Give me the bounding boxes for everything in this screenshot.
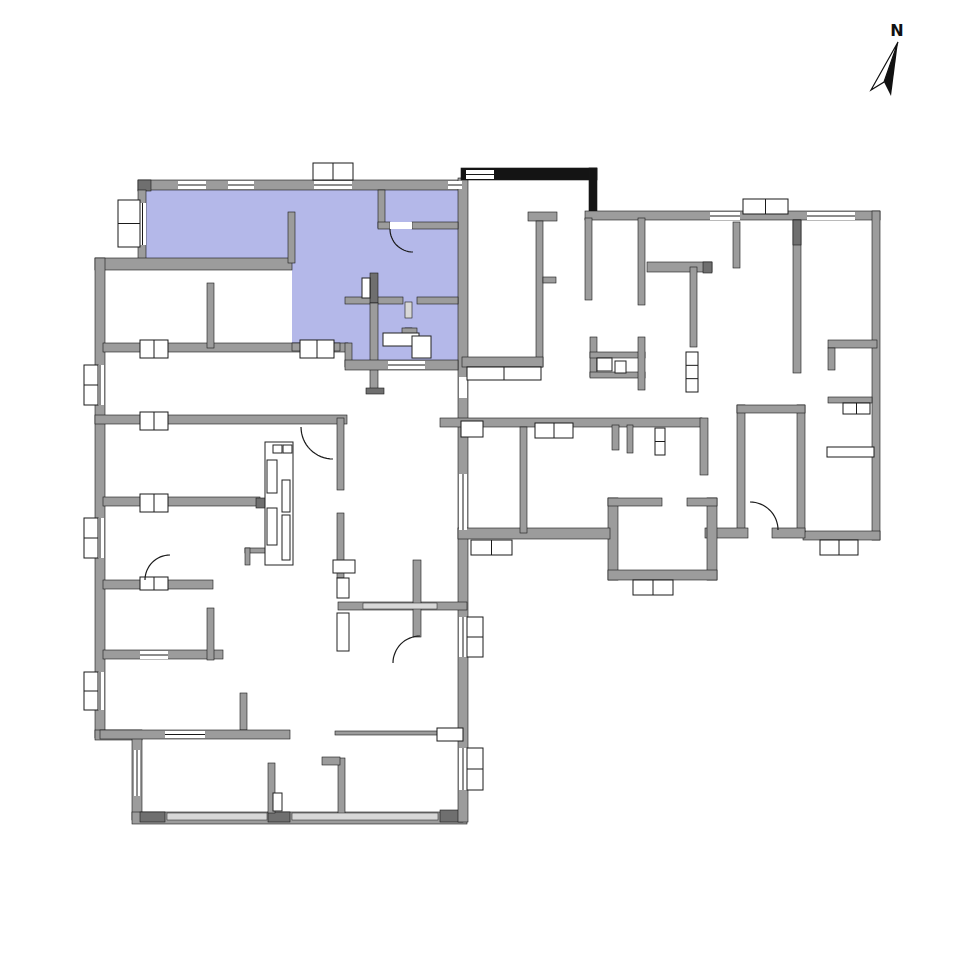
fixture [273, 793, 282, 811]
wall-segment [337, 418, 344, 490]
window-opening [390, 222, 412, 229]
wall-segment [413, 560, 421, 637]
wall-segment [140, 812, 165, 822]
fixture [267, 460, 277, 493]
wall-segment [590, 352, 645, 358]
wall-segment [417, 297, 458, 304]
wall-segment [737, 405, 805, 413]
fixture [337, 578, 349, 598]
wall-segment [612, 425, 619, 450]
fixture [333, 560, 355, 573]
wall-segment [872, 211, 880, 540]
window-symbol [827, 447, 874, 457]
fixture [282, 515, 290, 560]
wall-segment [772, 528, 805, 538]
wall-segment [700, 418, 708, 475]
wall-segment [207, 608, 214, 660]
wall-segment [608, 498, 662, 506]
wall-segment [366, 388, 384, 394]
wall-segment [458, 528, 610, 539]
wall-segment [589, 168, 597, 218]
wall-segment [95, 258, 292, 270]
north-label: N [890, 21, 903, 40]
wall-segment [322, 757, 340, 765]
window-symbol [461, 421, 483, 437]
wall-segment [638, 218, 645, 305]
wall-segment [288, 212, 295, 263]
wall-segment [828, 340, 877, 348]
fixture [615, 361, 626, 373]
wall-segment [793, 220, 801, 245]
wall-segment [647, 262, 712, 272]
wall-segment [627, 425, 633, 453]
window-symbol [437, 728, 463, 741]
plan-layer [84, 163, 880, 824]
window-symbol [686, 352, 698, 392]
wall-segment [240, 693, 247, 730]
wall-segment [638, 337, 645, 390]
wall-segment [245, 548, 250, 565]
wall-segment [207, 283, 214, 348]
fixture [412, 336, 431, 358]
wall-segment [335, 731, 438, 735]
window-opening [363, 603, 437, 609]
wall-segment [370, 303, 378, 393]
fixture [267, 508, 277, 545]
door-arc [750, 502, 778, 530]
wall-segment [412, 222, 458, 229]
fixture [283, 445, 292, 453]
wall-segment [585, 218, 592, 300]
wall-segment [828, 348, 835, 370]
wall-segment [370, 273, 378, 303]
wall-segment [687, 498, 717, 506]
wall-segment [528, 212, 557, 221]
door-arc [145, 555, 170, 580]
wall-segment [797, 405, 805, 532]
wall-segment [138, 180, 151, 191]
wall-segment [103, 497, 260, 506]
wall-segment [520, 427, 527, 533]
fixture [273, 445, 282, 453]
wall-segment [268, 812, 290, 822]
door-arc [393, 636, 420, 663]
fixture [337, 613, 349, 651]
floor-plan: N [0, 0, 960, 960]
north-arrow: N [871, 21, 904, 96]
wall-segment [462, 357, 543, 367]
floor-plan-page: N [0, 0, 960, 960]
wall-segment [405, 302, 412, 318]
wall-segment [95, 415, 347, 424]
fixture [282, 480, 290, 512]
window-opening [167, 813, 267, 820]
wall-segment [608, 570, 717, 580]
window-opening [459, 377, 467, 398]
wall-segment [338, 758, 345, 815]
fixture [362, 278, 370, 298]
wall-segment [707, 498, 717, 580]
wall-segment [690, 267, 697, 347]
wall-segment [536, 221, 543, 367]
door-arc [301, 427, 333, 459]
fixture [597, 358, 612, 371]
window-opening [292, 813, 438, 820]
wall-segment [737, 405, 745, 532]
wall-segment [733, 222, 740, 268]
wall-segment [378, 222, 390, 229]
wall-segment [803, 531, 880, 540]
wall-segment [703, 262, 712, 273]
wall-segment [828, 397, 872, 403]
wall-segment [543, 277, 556, 283]
